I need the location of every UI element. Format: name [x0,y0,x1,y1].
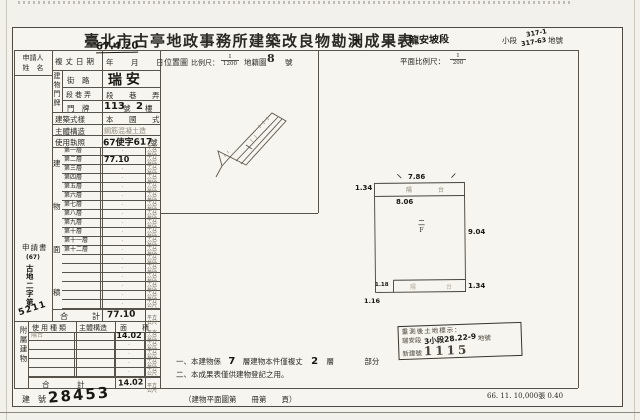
printed-decimal-dot: · [121,201,123,209]
attachment-use-type [28,368,75,376]
attachment-area-value: · [114,359,145,367]
floor-area-value: · [100,165,146,173]
applicant-cell: 申請人 姓 名 [14,50,52,76]
attachment-rows: 陽台14.02平方公尺·平方公尺·平方公尺·平方公尺·平方公尺 [28,332,160,377]
structure-label: 主體構造 [55,126,85,137]
lane-value: 段 巷 弄 [106,90,164,101]
row-line-y70 [52,70,160,71]
total-hand: 77.10 [107,310,136,321]
subsection-label: 小段 [502,35,517,46]
printed-decimal-dot: · [121,165,123,173]
floor-label: 第十二層 [64,246,101,254]
floor-label: 第一層 [64,147,101,155]
plan-scale-label: 平面比例尺： [400,56,445,67]
floor-label: 第八層 [64,210,101,218]
address-group-label: 建物門牌 [52,72,62,112]
site-label: 坐落 [383,37,395,46]
floor-label [64,264,101,272]
att-total-hand: 14.02 [118,377,144,387]
floor-area-value: · [100,264,146,272]
printed-decimal-dot: · [121,273,123,281]
floor-row: 第七層·平方公尺 [62,201,160,210]
floor-row: 第八層·平方公尺 [62,210,160,219]
printed-decimal-dot: · [121,174,123,182]
note-2: 二、本成果表僅供建物登記之用。 [176,369,289,380]
printed-decimal-dot: · [121,264,123,272]
survey-date-hand: 67.4.20 [96,41,139,54]
floor-row: 第十二層·平方公尺 [62,246,160,255]
plan-page-ref: （建物平面圖第 冊第 頁） [184,394,297,405]
floor-row: ·平方公尺 [62,291,160,300]
printed-decimal-dot: · [121,300,123,308]
printed-decimal-dot: · [128,341,130,349]
floor-area-value: · [100,273,146,281]
plan-dim-notch: 1.18 [375,282,389,288]
floor-area-value: · [100,228,146,236]
floor-area-value: · [100,174,146,182]
printed-decimal-dot: · [121,228,123,236]
attachment-use-type [28,350,75,358]
floor-row: 第九層·平方公尺 [62,219,160,228]
printed-decimal-dot: · [121,219,123,227]
building-no-label-2: 號 [38,394,46,405]
floor-row: ·平方公尺 [62,282,160,291]
lane-label: 段巷弄 [66,90,93,100]
street-hand: 瑞安 [108,68,145,89]
printed-decimal-dot: · [128,359,130,367]
location-scale-fraction: 11200 [221,54,239,67]
section-name-hand: 龍安坡段 [409,30,449,46]
floor-label [64,300,101,308]
floor-area-rows: 第一層·平方公尺第二層·77.10平方公尺第三層·平方公尺第四層·平方公尺第五層… [62,147,160,309]
printed-decimal-dot: · [121,147,123,155]
plan-floor-mark: 二 F [418,219,425,234]
note-1-hand-level: 2 [305,356,324,367]
survey-date-value: 年 月 日 [106,57,169,68]
floor-label: 第七層 [64,201,101,209]
floor-label: 第十一層 [64,237,101,245]
area-group-char-4: 積 [53,287,61,298]
attachment-row: ·平方公尺 [28,350,160,359]
note-1-hand-floors: 7 [223,356,240,367]
floor-label: 第五層 [64,183,101,191]
area-group-char-1: 建 [53,158,61,169]
application-doc-label: 申請書 [22,242,48,253]
unit-square-meters: 平方公尺 [147,367,157,377]
floor-area-value: ·77.10 [100,156,146,164]
floor-row: ·平方公尺 [62,264,160,273]
plan-dim-below-notch: 1.16 [364,297,380,305]
attachment-row: 陽台14.02平方公尺 [28,332,160,341]
survey-date-label: 複丈日期 [55,56,97,67]
attachment-structure [75,368,115,376]
plan-scale-fraction: 1200 [450,53,466,66]
floor-area-hand: 77.10 [104,155,129,164]
left-table-left [14,50,15,388]
location-box-bottom [160,213,318,214]
scan-page-bottom-line [0,412,640,413]
floor-area-value: · [100,201,146,209]
plan-balcony-bottom-label: 陽 台 [410,282,464,291]
printed-decimal-dot: · [128,368,130,376]
unit-square-meters: 平方公尺 [147,299,157,309]
door-floor-hand: 2 [136,101,143,112]
attachment-use-type: 陽台 [28,332,75,340]
attachment-area-value: · [114,368,145,376]
floor-row: 第六層·平方公尺 [62,192,160,201]
cadastral-map-number: 8 [267,52,275,65]
applicant-label-line2: 姓 名 [14,63,52,73]
floor-row: ·平方公尺 [62,255,160,264]
attachment-use-type [28,341,75,349]
floor-area-value: · [100,192,146,200]
district-label: 區 [398,35,406,46]
floor-row: 第十一層·平方公尺 [62,237,160,246]
door-number-hand: 113 [104,101,125,112]
scanned-survey-form: 臺北市古亭地政事務所建築改良物勘測成果表 大 坐落 區 龍安坡段 小段 317-… [0,0,640,420]
application-doc-hand-char: (67) [26,254,40,261]
attachment-structure [75,332,115,340]
plan-dim-right: 9.04 [468,228,485,236]
attachment-row: ·平方公尺 [28,341,160,350]
floor-area-value: · [100,183,146,191]
building-no-label-1: 建 [22,394,30,405]
printed-decimal-dot: · [128,350,130,358]
floor-area-value: · [100,246,146,254]
print-info: 66. 11. 10,000張 0.40 [487,391,563,401]
style-label: 建築式樣 [55,114,85,125]
floor-row: 第五層·平方公尺 [62,183,160,192]
printed-decimal-dot: · [121,210,123,218]
floor-area-value: · [100,300,146,308]
attachment-area-value: · [114,350,145,358]
printed-decimal-dot: · [121,192,123,200]
total-label: 合 計 [60,311,108,322]
resurvey-stamp-box: 重測後土地標示： 瑞安段 3小段28.22-9 地號 新建號 1115 [397,322,522,360]
printed-decimal-dot: · [121,255,123,263]
printed-decimal-dot: · [121,237,123,245]
applicant-label-line1: 申請人 [14,53,52,63]
floor-area-value: · [100,255,146,263]
plan-dim-left-top: 1.34 [355,184,372,192]
floor-label: 第六層 [64,192,101,200]
scan-page-edge-right [634,0,635,420]
location-scale-label: 比例尺： [191,58,219,68]
plan-dim-top: 7.86 [408,173,425,181]
floor-area-value: · [100,219,146,227]
attachment-area-value: 14.02 [114,332,145,340]
floor-row: ·平方公尺 [62,300,160,309]
floor-label [64,273,101,281]
floor-label [64,282,101,290]
area-group-char-2: 物 [53,201,61,212]
floor-label: 第十層 [64,228,101,236]
attachment-use-type [28,359,75,367]
door-label: 門 牌 [67,103,90,114]
land-no-label: 地號 [548,35,563,46]
scan-cutoff-text-strip [18,1,573,4]
floor-area-value: · [100,282,146,290]
plan-balcony-top-label: 陽 台 [406,185,454,194]
attachment-area-hand: 14.02 [116,331,141,340]
floor-row: 第二層·77.10平方公尺 [62,156,160,165]
attachment-structure [75,341,115,349]
floor-label: 第三層 [64,165,101,173]
att-total-unit: 平方公尺 [147,378,157,397]
attachment-row: ·平方公尺 [28,359,160,368]
cadastral-number-unit: 號 [285,57,293,68]
printed-decimal-dot: · [121,183,123,191]
plan-dim-inner-top: 8.06 [396,198,413,206]
door-number-unit: 號 [123,103,131,114]
floor-area-value: · [100,147,146,155]
note-1: 一、本建物係 7 層建物本件僅複丈 2 層 部分 [176,356,379,367]
floor-area-value: · [100,210,146,218]
printed-decimal-dot: · [121,246,123,254]
printed-decimal-dot: · [121,282,123,290]
attachment-structure [75,359,115,367]
scan-page-edge-left [6,0,7,420]
attachment-area-value: · [114,341,145,349]
floor-label [64,291,101,299]
district-hand-da: 大 [352,33,362,48]
floor-row: 第四層·平方公尺 [62,174,160,183]
attachment-structure [75,350,115,358]
floor-label [64,255,101,263]
location-sketch [200,95,320,195]
floor-area-value: · [100,291,146,299]
floor-label: 第九層 [64,219,101,227]
style-value: 本 國 式 [106,114,164,125]
printed-decimal-dot: · [121,291,123,299]
floor-label: 第四層 [64,174,101,182]
floor-row: 第三層·平方公尺 [62,165,160,174]
cadastral-map-label: 地籍圖 [244,57,267,68]
area-group-char-3: 面 [53,244,61,255]
floor-row: 第十層·平方公尺 [62,228,160,237]
street-label: 街 路 [67,75,90,86]
main-box-right [578,50,579,388]
attachment-row: ·平方公尺 [28,368,160,377]
floor-area-value: · [100,237,146,245]
floor-row: ·平方公尺 [62,273,160,282]
plan-dim-bottom-right: 1.34 [468,282,485,290]
floor-label: 第二層 [64,156,101,164]
door-floor-unit: 樓 [145,103,153,114]
col-line-x62-top [62,70,63,112]
